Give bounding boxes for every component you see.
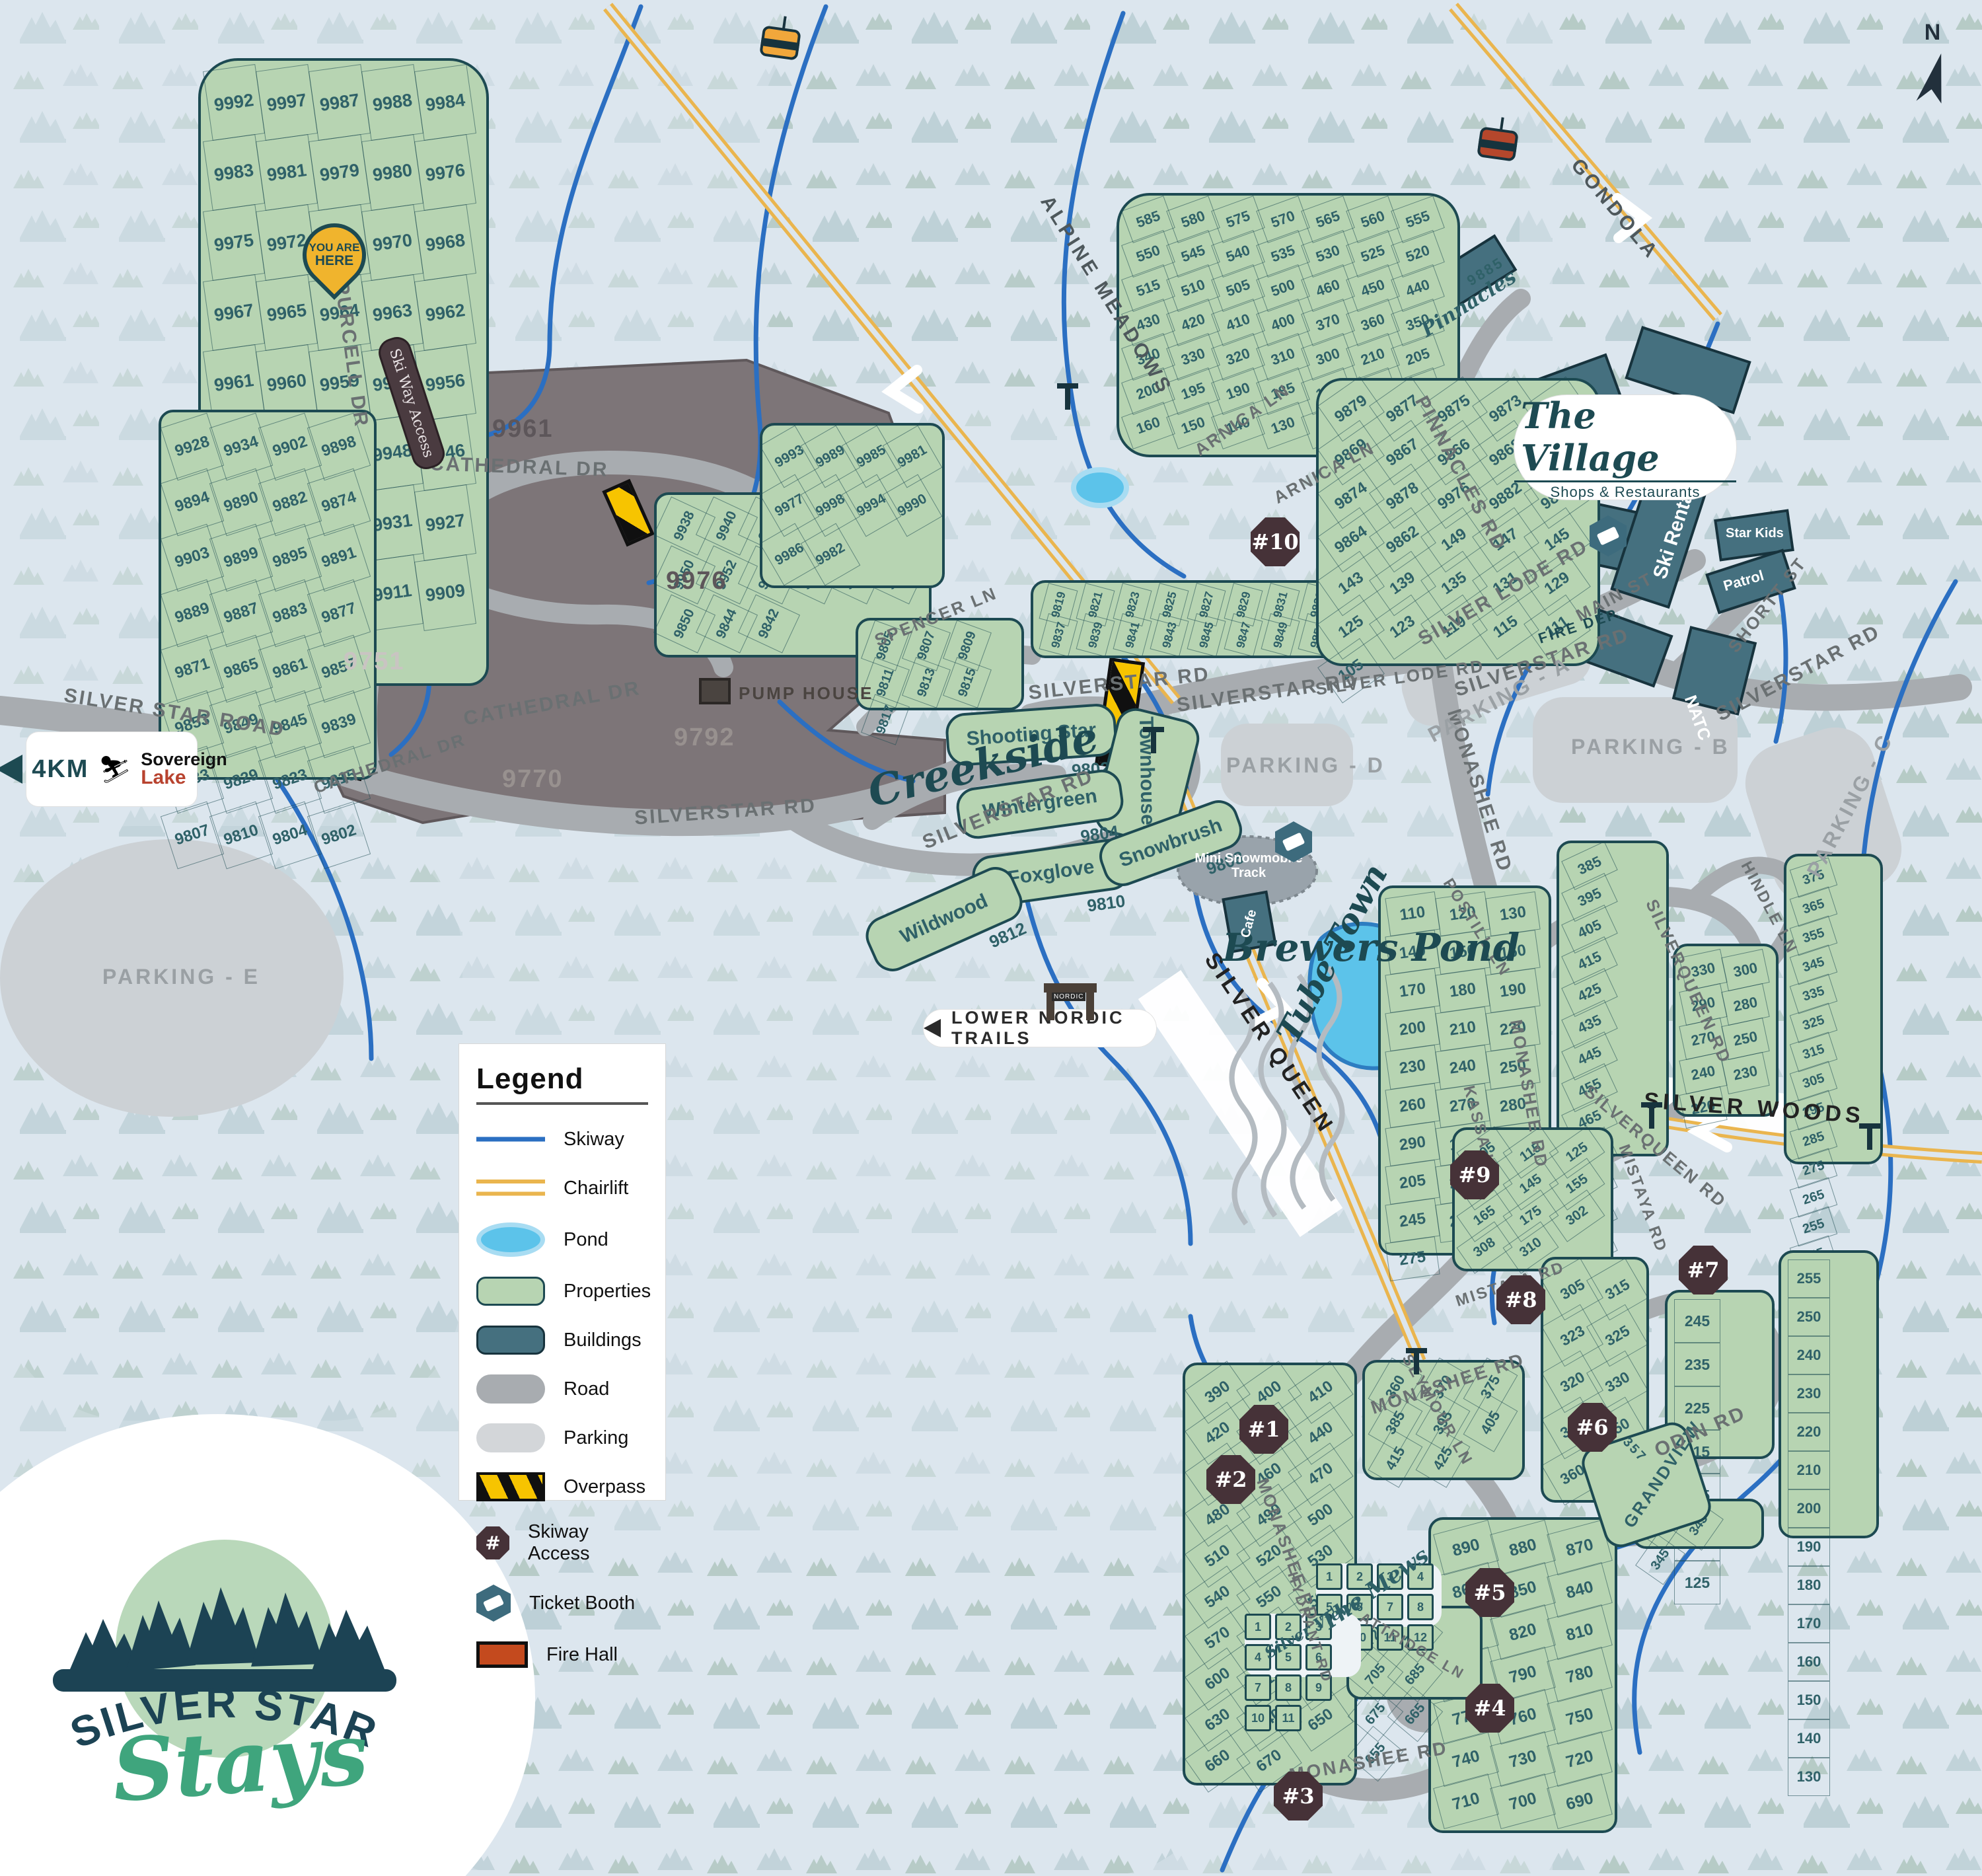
lot-number: 9979 — [309, 134, 371, 211]
resort-map: 9992999799879988998499839981997999809976… — [0, 0, 1982, 1876]
skiway-access-marker-4: #4 — [1465, 1684, 1514, 1733]
lot-number: 9962 — [414, 274, 476, 351]
lot-number: 9983 — [203, 134, 265, 211]
marker-label: #5 — [1473, 1580, 1506, 1605]
legend-swatch — [476, 1423, 545, 1452]
dark-lot-9976: 9976 — [666, 567, 727, 595]
legend-label: Ticket Booth — [529, 1593, 635, 1614]
lot-number: 9981 — [256, 134, 318, 211]
the-village-bubble: The Village Shops & Restaurants — [1514, 395, 1736, 500]
lot-number: 10 — [1245, 1705, 1271, 1731]
dark-lot-9770: 9770 — [502, 765, 564, 794]
lot-number: 275 — [1385, 1236, 1440, 1281]
logo-line2: Stays — [109, 1703, 371, 1822]
village-title: The Village — [1514, 394, 1736, 482]
dark-lot-9751: 9751 — [344, 648, 405, 676]
legend-row: Fire Hall — [476, 1641, 648, 1668]
marker-label: #4 — [1473, 1696, 1506, 1721]
sovereign-name-2: Lake — [141, 769, 227, 788]
lot-number: 9928 — [161, 413, 224, 481]
marker-label: #3 — [1282, 1783, 1314, 1809]
parking-e-label: PARKING - E — [102, 965, 260, 989]
lot-number: 9895 — [258, 524, 322, 592]
legend-swatch — [476, 1174, 545, 1203]
marker-label: #8 — [1504, 1287, 1537, 1312]
sovereign-distance: 4KM — [32, 755, 89, 784]
left-arrow-icon — [0, 755, 22, 784]
nordic-gate-label: NORDIC — [1052, 993, 1085, 1001]
legend-swatch — [476, 1641, 528, 1668]
marker-label: #1 — [1247, 1417, 1280, 1442]
lot-number: 9899 — [209, 524, 273, 592]
lot-number: 9984 — [414, 64, 476, 141]
legend-label: Fire Hall — [546, 1644, 618, 1666]
lot-number: 11 — [1275, 1705, 1302, 1731]
compass-n-label: N — [1903, 20, 1962, 46]
village-subtitle: Shops & Restaurants — [1551, 484, 1701, 501]
lot-number: 8 — [1407, 1594, 1434, 1620]
legend-row: # Skiway Access — [476, 1521, 648, 1565]
lot-number: 9877 — [307, 580, 371, 648]
skier-icon: ⛷ — [98, 754, 131, 785]
lot-number: 150 — [1788, 1681, 1830, 1719]
marker-label: #9 — [1458, 1162, 1490, 1187]
lot-number: 9982 — [801, 523, 861, 585]
lot-number: 9882 — [258, 469, 322, 537]
lift-tower-icon — [1867, 1123, 1872, 1150]
skiway-access-marker-7: #7 — [1679, 1246, 1728, 1294]
legend-row: Parking — [476, 1423, 648, 1452]
lot-number: 9813 — [902, 657, 951, 708]
lot-number: 200 — [1788, 1489, 1830, 1528]
lot-number: 9980 — [361, 134, 423, 211]
area-label-brewers-pond: Brewers Pond — [1222, 925, 1520, 970]
you-are-here-line1: YOU ARE — [309, 242, 360, 254]
gondola-cabin-icon-red — [1477, 126, 1519, 162]
lot-number: 9902 — [258, 413, 322, 481]
compass-needle-icon — [1903, 46, 1962, 112]
lot-number: 9976 — [414, 134, 476, 211]
lot-number: 140 — [1788, 1719, 1830, 1758]
marker-label: #10 — [1251, 529, 1298, 554]
lower-nordic-trails-sign: LOWER NORDIC TRAILS — [924, 1010, 1156, 1047]
lot-number: 9988 — [361, 64, 423, 141]
lot-number: 255 — [1788, 1259, 1830, 1298]
lot-number: 9861 — [258, 635, 322, 703]
skiway-access-marker-9: #9 — [1450, 1150, 1499, 1199]
legend-label: Overpass — [564, 1476, 645, 1498]
legend-swatch — [476, 1585, 511, 1622]
lot-number: 235 — [1674, 1343, 1720, 1386]
sovereign-name-1: Sovereign — [141, 751, 227, 769]
legend-row: Properties — [476, 1277, 648, 1306]
lot-number: 9990 — [883, 474, 943, 537]
pump-house-building — [700, 679, 729, 703]
lot-number: 8 — [1275, 1674, 1302, 1701]
legend-row: Chairlift — [476, 1174, 648, 1203]
lift-tower-icon — [1414, 1348, 1419, 1374]
lift-tower-icon — [1151, 727, 1156, 753]
lot-number: 125 — [1674, 1561, 1720, 1604]
lot-number: 9871 — [161, 635, 224, 703]
legend-swatch — [476, 1125, 545, 1154]
lot-number: 160 — [1121, 402, 1175, 449]
pump-house-label: PUMP HOUSE — [739, 683, 873, 704]
star-kids-label: Star Kids — [1726, 526, 1784, 541]
lot-number: 9992 — [203, 64, 265, 141]
skiway-access-marker-5: #5 — [1465, 1568, 1514, 1617]
legend-row: Pond — [476, 1222, 648, 1257]
legend-label: Chairlift — [564, 1178, 628, 1199]
lot-number: 9903 — [161, 524, 224, 592]
marker-label: #7 — [1687, 1257, 1719, 1283]
legend-label: Skiway — [564, 1129, 624, 1150]
legend-row: Overpass — [476, 1472, 648, 1501]
lift-tower-icon — [1065, 383, 1070, 410]
lot-number: 9890 — [209, 469, 273, 537]
skiway-access-marker-6: #6 — [1568, 1403, 1617, 1452]
lot-number: 9842 — [738, 594, 800, 653]
legend-label: Pond — [564, 1229, 608, 1251]
lot-number: 9909 — [414, 554, 476, 631]
legend-row: Skiway — [476, 1125, 648, 1154]
lot-number: 9865 — [209, 635, 273, 703]
cluster-upper-fan: 9993998999859981997799989994999099869982 — [760, 423, 945, 588]
skiway-access-marker-1: #1 — [1239, 1405, 1288, 1454]
legend-label: Road — [564, 1378, 609, 1400]
lot-number: 9883 — [258, 580, 322, 648]
legend-swatch: # — [476, 1526, 509, 1559]
lot-number: 245 — [1674, 1299, 1720, 1343]
legend-title: Legend — [476, 1063, 648, 1096]
lot-number: 9927 — [414, 484, 476, 561]
legend-label: Properties — [564, 1281, 651, 1302]
lot-number: 9889 — [161, 580, 224, 648]
lot-number: 180 — [1788, 1566, 1830, 1604]
lot-number: 9997 — [256, 64, 318, 141]
lot-number: 302 — [1549, 1189, 1605, 1242]
gondola-cabin-icon-orange — [759, 25, 801, 61]
lot-number: 210 — [1788, 1451, 1830, 1489]
you-are-here-line2: HERE — [315, 254, 353, 268]
lot-number: 220 — [1788, 1413, 1830, 1451]
dark-lot-9792: 9792 — [674, 724, 735, 752]
lot-number: 9887 — [209, 580, 273, 648]
legend-swatch — [476, 1472, 545, 1501]
marker-label: #6 — [1576, 1415, 1608, 1440]
legend-swatch — [476, 1374, 545, 1404]
marker-label: #2 — [1214, 1467, 1247, 1492]
legend-label: Parking — [564, 1427, 628, 1449]
compass: N — [1903, 20, 1962, 112]
parking-d-label: PARKING - D — [1226, 753, 1385, 778]
lot-number: 160 — [1788, 1643, 1830, 1681]
small-pond — [1074, 470, 1126, 506]
legend-row: Ticket Booth — [476, 1585, 648, 1622]
legend-items: Skiway Chairlift Pond Properties — [476, 1125, 648, 1668]
lot-number: 9894 — [161, 469, 224, 537]
skiway-access-marker-2: #2 — [1206, 1455, 1255, 1504]
lot-number: 240 — [1788, 1336, 1830, 1374]
logo-trees-silhouette — [53, 1587, 396, 1692]
legend-label: Skiway Access — [528, 1521, 648, 1565]
skiway-access-marker-3: #3 — [1274, 1772, 1323, 1820]
lot-number: 170 — [1788, 1604, 1830, 1643]
lot-number: 9891 — [307, 524, 371, 592]
lot-number: 190 — [1788, 1528, 1830, 1566]
lot-number: 9975 — [203, 204, 265, 281]
nordic-gate-icon: NORDIC — [1044, 983, 1097, 1020]
sovereign-lake-sign: 4KM ⛷ Sovereign Lake — [26, 732, 197, 806]
lot-number: 9987 — [309, 64, 371, 141]
lot-number: 9965 — [256, 274, 318, 351]
lot-number: 9967 — [203, 274, 265, 351]
legend-divider — [476, 1102, 648, 1105]
lot-number: 1 — [1245, 1614, 1271, 1640]
legend-swatch — [476, 1222, 545, 1257]
skiway-access-marker-8: #8 — [1496, 1275, 1545, 1324]
lot-number: 1 — [1316, 1563, 1342, 1590]
legend-row: Road — [476, 1374, 648, 1404]
legend-row: Buildings — [476, 1326, 648, 1355]
lot-number: 250 — [1788, 1298, 1830, 1336]
silver-star-stays-logo: SILVER STAR Stays — [26, 1513, 423, 1857]
lift-tower-icon — [1649, 1102, 1654, 1129]
legend-swatch — [476, 1326, 545, 1355]
lot-number: 9874 — [307, 469, 371, 537]
lot-number: 9970 — [361, 204, 423, 281]
lot-number: 9934 — [209, 413, 273, 481]
legend-panel: Legend Skiway Chairlift Pond — [459, 1044, 665, 1500]
cluster-odin-outer: 2552502402302202102001901801701601501401… — [1779, 1250, 1879, 1538]
legend-swatch — [476, 1277, 545, 1306]
grandview-lot-number: 357 — [1619, 1435, 1650, 1466]
creekside-building-name: Foxglove — [1006, 856, 1095, 890]
legend-label: Buildings — [564, 1330, 642, 1351]
lot-number: 130 — [1788, 1758, 1830, 1796]
lot-number: 9815 — [943, 657, 992, 708]
lot-number: 9839 — [307, 691, 371, 759]
left-arrow-icon — [924, 1019, 941, 1037]
lot-number: 230 — [1788, 1374, 1830, 1413]
legend-swatch-glyph: # — [485, 1532, 500, 1554]
dark-lot-9961: 9961 — [492, 415, 554, 443]
lot-number: 7 — [1245, 1674, 1271, 1701]
lot-number: 9968 — [414, 204, 476, 281]
